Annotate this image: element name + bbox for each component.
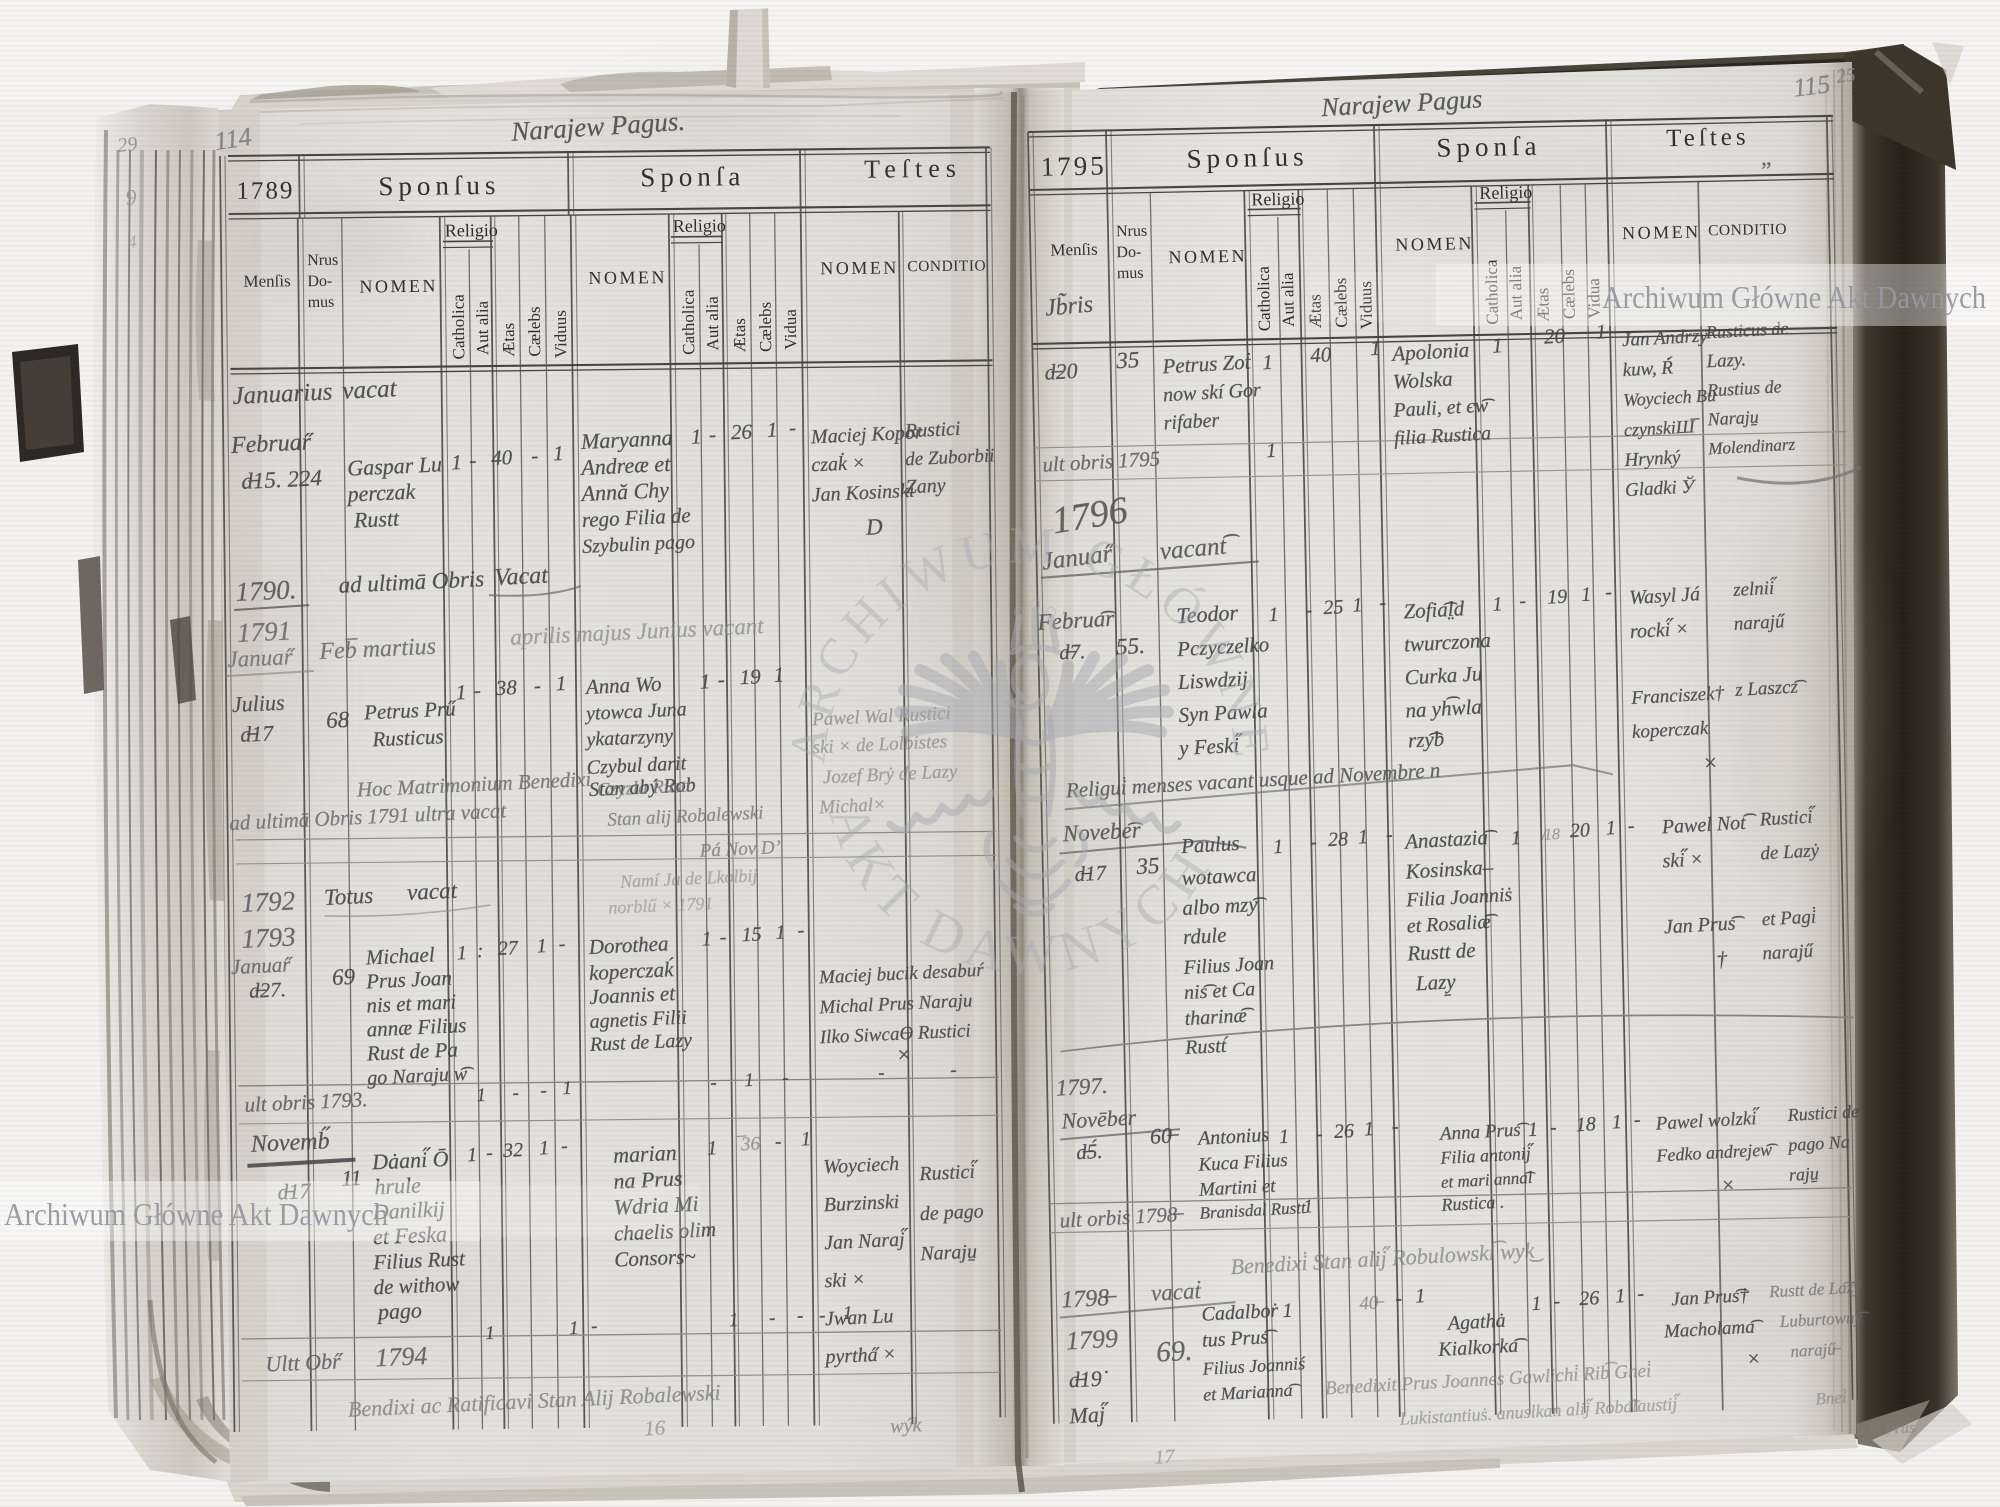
svg-text:9 ℓṡ Prus: 9 ℓṡ Prus <box>1856 1419 1916 1439</box>
svg-text:4: 4 <box>127 231 137 252</box>
svg-text:29: 29 <box>116 133 138 157</box>
svg-text:Archiwum Główne Akt Dawnych: Archiwum Główne Akt Dawnych <box>1602 279 1986 315</box>
svg-text:Archiwum Główne Akt Dawnych: Archiwum Główne Akt Dawnych <box>4 1196 388 1232</box>
svg-text:9: 9 <box>125 184 138 210</box>
